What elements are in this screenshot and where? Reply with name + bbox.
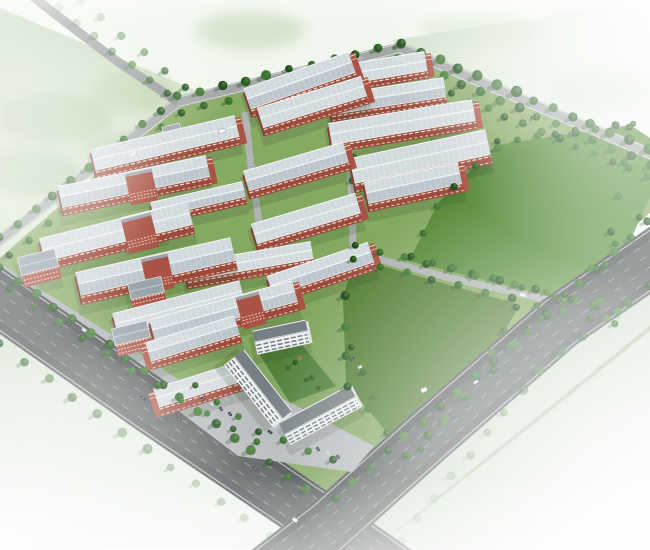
industrial-park-aerial-rendering: Aerial perspective rendering of an indus… <box>0 0 650 550</box>
haze-overlay <box>0 475 650 550</box>
scene-canvas <box>0 0 650 550</box>
haze-overlay <box>0 0 650 26</box>
